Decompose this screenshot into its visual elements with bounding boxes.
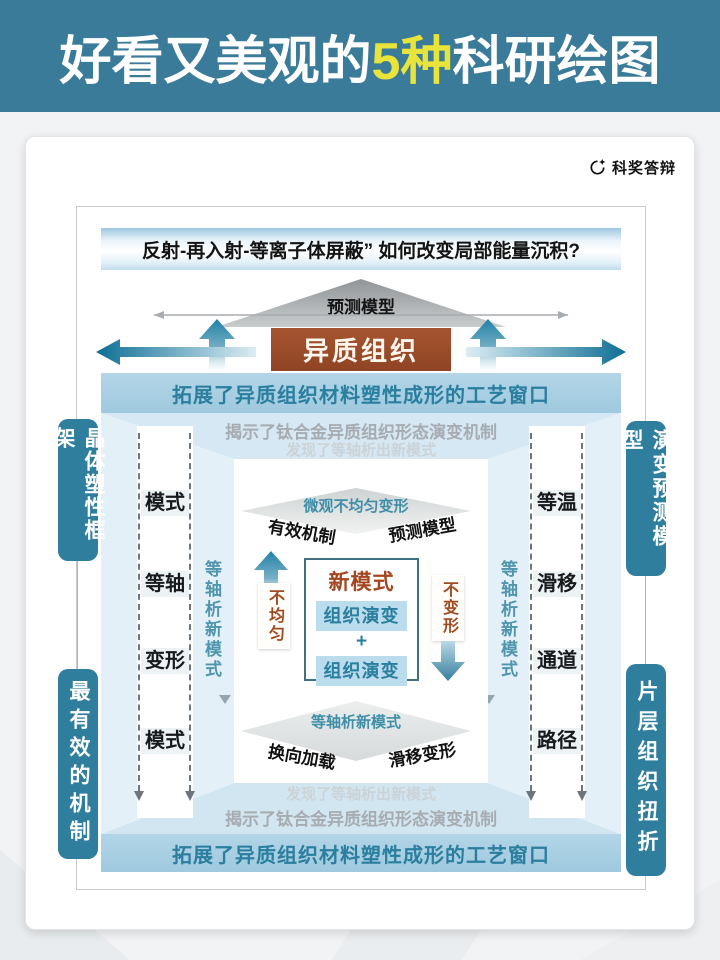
- left-column-strip: [137, 426, 193, 818]
- pill-connector-line: [77, 561, 78, 669]
- nondeform-label: 不变形: [436, 581, 460, 635]
- nondeform-label-box: 不变形: [432, 575, 464, 641]
- new-model-box: 新模式 组织演变 + 组织演变: [304, 558, 419, 681]
- bottom-diamond-title: 等轴析新模式: [241, 711, 471, 732]
- top-band-text: 拓展了异质组织材料塑性成形的工艺窗口: [172, 379, 550, 408]
- left-column-item: 模式: [135, 724, 195, 753]
- right-column-item: 通道: [527, 644, 587, 673]
- bottom-band-text: 拓展了异质组织材料塑性成形的工艺窗口: [172, 839, 550, 868]
- brand-logo: 科奖答辩: [588, 157, 676, 178]
- nonuniform-label: 不均匀: [262, 589, 286, 643]
- right-arrow-icon: [466, 339, 626, 365]
- right-column-strip: [529, 426, 585, 818]
- evolution-item: 组织演变: [316, 656, 407, 686]
- evolution-item: 组织演变: [316, 601, 407, 631]
- pill-connector-line: [645, 576, 646, 664]
- page-title: 好看又美观的5种科研绘图: [60, 19, 661, 94]
- right-column-item: 路径: [527, 724, 587, 753]
- pill-most-effective-mechanism: 最有效的机制: [58, 669, 98, 859]
- nonuniform-label-box: 不均匀: [258, 583, 290, 649]
- pill-crystal-plasticity: 晶体塑性框架: [58, 419, 98, 561]
- hetero-structure-box: 异质组织: [271, 328, 451, 371]
- left-column-item: 等轴: [135, 567, 195, 596]
- pill-evolution-prediction-model: 演变预测模型: [626, 421, 666, 576]
- left-arrow-icon: [96, 339, 256, 365]
- bottom-discover-text: 发现了等轴析出新模式: [101, 783, 621, 804]
- question-bar: 反射-再入射-等离子体屏蔽” 如何改变局部能量沉积?: [101, 228, 621, 270]
- left-axis-label: 等轴析新模式: [202, 559, 224, 681]
- plus-sign: +: [306, 633, 417, 651]
- small-down-arrowhead-icon: [219, 695, 231, 704]
- question-text: 反射-再入射-等离子体屏蔽” 如何改变局部能量沉积?: [142, 236, 580, 263]
- page: 好看又美观的5种科研绘图 科奖答辩 反射-再入射-等离子体屏蔽” 如何改变局部能…: [0, 0, 720, 960]
- top-banner: 好看又美观的5种科研绘图: [0, 0, 720, 112]
- hetero-structure-label: 异质组织: [303, 331, 419, 368]
- content-card: 科奖答辩 反射-再入射-等离子体屏蔽” 如何改变局部能量沉积? 预测模型 异质组…: [25, 136, 695, 930]
- right-column-item: 等温: [527, 486, 587, 515]
- right-column-item: 滑移: [527, 567, 587, 596]
- bottom-reveal-text: 揭示了钛合金异质组织形态演变机制: [101, 805, 621, 830]
- left-column-item: 变形: [135, 644, 195, 673]
- left-column-item: 模式: [135, 486, 195, 515]
- title-prefix: 好看又美观的: [60, 33, 372, 91]
- down-arrow-icon: [431, 641, 465, 681]
- pill-lamellar-kinking: 片层组织扭折: [626, 664, 666, 876]
- orbit-sparkle-icon: [588, 158, 607, 177]
- new-model-title: 新模式: [306, 566, 417, 596]
- title-suffix: 科研绘图: [452, 33, 660, 91]
- right-axis-label: 等轴析新模式: [498, 559, 520, 681]
- brand-name: 科奖答辩: [612, 157, 676, 178]
- title-highlight: 5种: [372, 33, 453, 91]
- bottom-band-statement: 拓展了异质组织材料塑性成形的工艺窗口: [101, 834, 621, 872]
- top-band-statement: 拓展了异质组织材料塑性成形的工艺窗口: [101, 373, 621, 413]
